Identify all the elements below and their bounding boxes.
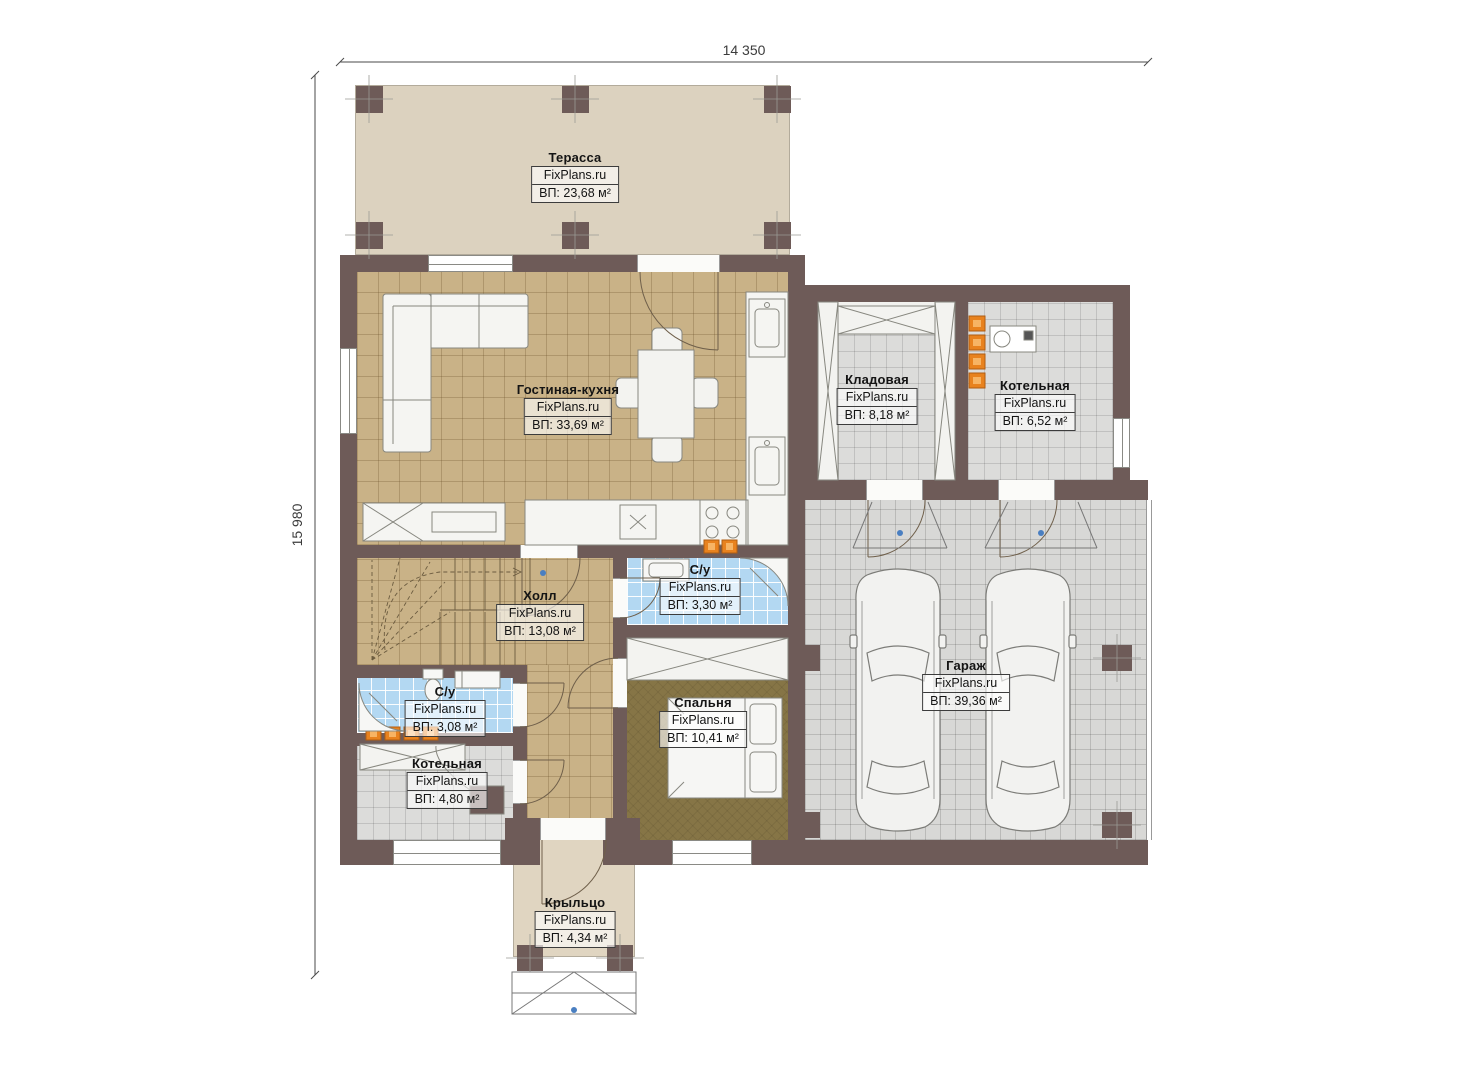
dimension-width: 14 350 xyxy=(723,42,766,58)
door-opening-kitchen-hall xyxy=(520,545,578,558)
wall-segment xyxy=(805,302,818,480)
room-label-boiler-bottom: Котельная FixPlans.ru ВП: 4,80 м² xyxy=(407,756,488,809)
room-area: ВП: 6,52 м² xyxy=(996,413,1075,430)
window xyxy=(1113,418,1130,468)
wall-segment xyxy=(613,545,790,558)
wall-segment xyxy=(805,480,1148,500)
wall-segment xyxy=(955,302,968,480)
column xyxy=(764,86,791,113)
column xyxy=(517,945,543,971)
column xyxy=(607,945,633,971)
room-title: Котельная xyxy=(407,756,488,771)
wall-segment xyxy=(603,840,638,865)
wall-segment xyxy=(613,625,790,638)
door-opening-garage-1 xyxy=(866,480,923,500)
room-area: ВП: 4,80 м² xyxy=(408,791,487,808)
column xyxy=(1102,645,1132,671)
room-title: Гараж xyxy=(922,658,1010,673)
watermark: FixPlans.ru xyxy=(661,579,740,597)
room-label-boiler-top: Котельная FixPlans.ru ВП: 6,52 м² xyxy=(995,378,1076,431)
room-label-porch: Крыльцо FixPlans.ru ВП: 4,34 м² xyxy=(535,895,616,948)
room-title: Спальня xyxy=(659,695,747,710)
wall-segment xyxy=(357,545,520,558)
room-area: ВП: 3,08 м² xyxy=(406,719,485,736)
room-area: ВП: 8,18 м² xyxy=(838,407,917,424)
room-area: ВП: 39,36 м² xyxy=(923,693,1009,710)
room-area: ВП: 10,41 м² xyxy=(660,730,746,747)
window xyxy=(672,840,752,865)
column xyxy=(562,222,589,249)
wall-segment xyxy=(805,285,1130,302)
wall-segment xyxy=(505,840,540,865)
watermark: FixPlans.ru xyxy=(406,701,485,719)
room-label-living-kitchen: Гостиная-кухня FixPlans.ru ВП: 33,69 м² xyxy=(517,382,619,435)
room-title: Холл xyxy=(496,588,584,603)
column xyxy=(1102,812,1132,838)
wall-segment xyxy=(578,545,613,558)
door-opening-bath-small xyxy=(613,578,627,618)
porch-vestibule xyxy=(540,840,606,864)
wall-segment xyxy=(805,840,1148,865)
room-label-garage: Гараж FixPlans.ru ВП: 39,36 м² xyxy=(922,658,1010,711)
watermark: FixPlans.ru xyxy=(923,675,1009,693)
window xyxy=(428,255,513,272)
room-title: Крыльцо xyxy=(535,895,616,910)
wardrobe-strip xyxy=(627,638,788,680)
column xyxy=(764,222,791,249)
wall-segment xyxy=(788,255,805,865)
watermark: FixPlans.ru xyxy=(525,399,611,417)
watermark: FixPlans.ru xyxy=(497,605,583,623)
room-area: ВП: 13,08 м² xyxy=(497,623,583,640)
watermark: FixPlans.ru xyxy=(660,712,746,730)
door-opening-bath-left xyxy=(513,683,527,727)
room-title: Терасса xyxy=(531,150,619,165)
door-opening-terrace xyxy=(637,255,720,272)
wall-segment xyxy=(340,255,357,865)
room-floor-hall-corridor xyxy=(527,665,613,840)
wall-segment xyxy=(357,665,527,678)
watermark: FixPlans.ru xyxy=(838,389,917,407)
room-title: Котельная xyxy=(995,378,1076,393)
column xyxy=(790,645,820,671)
room-title: Гостиная-кухня xyxy=(517,382,619,397)
watermark: FixPlans.ru xyxy=(532,167,618,185)
watermark: FixPlans.ru xyxy=(996,395,1075,413)
porch-steps xyxy=(512,972,636,1014)
watermark: FixPlans.ru xyxy=(536,912,615,930)
room-area: ВП: 4,34 м² xyxy=(536,930,615,947)
room-title: С/у xyxy=(405,684,486,699)
room-area: ВП: 3,30 м² xyxy=(661,597,740,614)
room-label-bath-left: С/у FixPlans.ru ВП: 3,08 м² xyxy=(405,684,486,737)
room-area: ВП: 33,69 м² xyxy=(525,417,611,434)
door-opening-garage-2 xyxy=(998,480,1055,500)
room-title: Кладовая xyxy=(837,372,918,387)
column xyxy=(356,86,383,113)
window xyxy=(340,348,357,434)
door-opening-entrance xyxy=(540,818,606,840)
door-opening-bedroom xyxy=(613,658,627,708)
room-title: С/у xyxy=(660,562,741,577)
column xyxy=(356,222,383,249)
room-area: ВП: 23,68 м² xyxy=(532,185,618,202)
wall-segment xyxy=(340,255,805,272)
room-label-bedroom: Спальня FixPlans.ru ВП: 10,41 м² xyxy=(659,695,747,748)
room-label-terrace: Терасса FixPlans.ru ВП: 23,68 м² xyxy=(531,150,619,203)
column xyxy=(790,812,820,838)
watermark: FixPlans.ru xyxy=(408,773,487,791)
dimension-height: 15 980 xyxy=(289,504,305,547)
garage-open-edge xyxy=(1146,500,1152,840)
window xyxy=(393,840,501,865)
floor-plan: Терасса FixPlans.ru ВП: 23,68 м² Гостина… xyxy=(0,0,1474,1080)
column xyxy=(562,86,589,113)
door-opening-boiler-bottom xyxy=(513,760,527,804)
room-label-bath-small: С/у FixPlans.ru ВП: 3,30 м² xyxy=(660,562,741,615)
room-label-hall: Холл FixPlans.ru ВП: 13,08 м² xyxy=(496,588,584,641)
room-label-storage: Кладовая FixPlans.ru ВП: 8,18 м² xyxy=(837,372,918,425)
